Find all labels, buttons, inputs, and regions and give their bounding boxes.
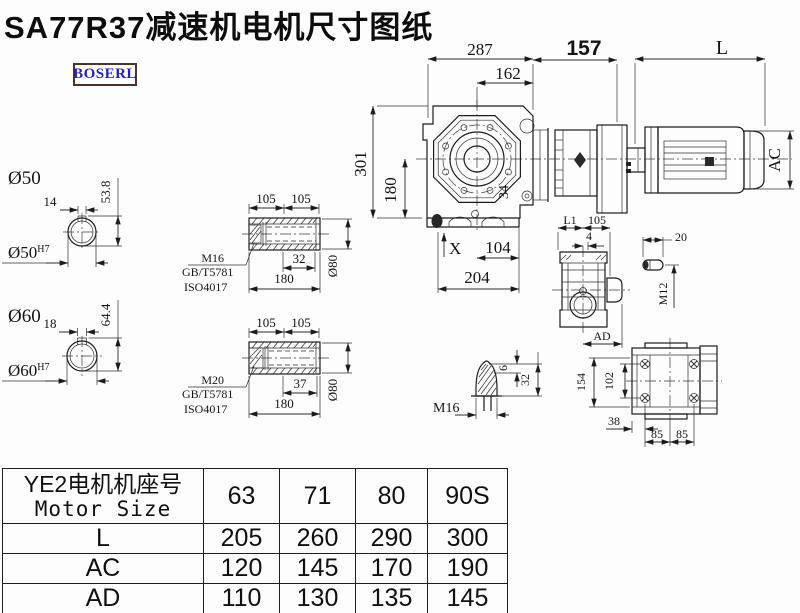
standard-2: ISO4017 xyxy=(184,280,227,294)
cell: 260 xyxy=(280,524,356,554)
size-71: 71 xyxy=(280,469,356,524)
bore-label: Ø50H7 xyxy=(8,243,50,262)
table-row-AC: AC 120 145 170 190 xyxy=(3,554,508,584)
dim-37: 37 xyxy=(294,376,308,391)
row-label: AD xyxy=(3,584,204,613)
dim-105a: 105 xyxy=(256,315,276,330)
dim-6: 6 xyxy=(496,365,510,371)
cell: 130 xyxy=(280,584,356,613)
dim-105b: 105 xyxy=(291,315,311,330)
dim-20: 20 xyxy=(675,230,687,244)
dim-32: 32 xyxy=(293,251,306,266)
bolt-spec: M20 xyxy=(201,373,224,387)
dim-d80: Ø80 xyxy=(325,255,340,277)
size-63: 63 xyxy=(204,469,280,524)
dim-key-width: 14 xyxy=(44,194,58,209)
dim-105b: 105 xyxy=(291,191,311,206)
dim-L: L xyxy=(716,37,728,59)
dim-34: 34 xyxy=(497,185,512,199)
table-row-header: YE2电机机座号 Motor Size 63 71 80 90S xyxy=(3,469,508,524)
dim-180: 180 xyxy=(274,396,294,411)
dim-287: 287 xyxy=(467,40,493,59)
drawing-page: SA77R37减速机电机尺寸图纸 BOSERL xyxy=(0,0,800,613)
dim-204: 204 xyxy=(464,268,490,287)
dim-85b: 85 xyxy=(676,427,688,441)
shaft-section-60: Ø60 18 64.4 Ø60H7 xyxy=(2,300,122,385)
oil-plug xyxy=(432,214,443,228)
dim-4: 4 xyxy=(586,229,592,243)
standard-2: ISO4017 xyxy=(184,402,227,416)
dim-180: 180 xyxy=(274,271,294,286)
header-motor-size: YE2电机机座号 Motor Size xyxy=(3,469,204,524)
cell: 290 xyxy=(356,524,428,554)
plug-detail: 6 32 M16 xyxy=(433,350,542,419)
dim-d80: Ø80 xyxy=(325,379,340,401)
dim-157: 157 xyxy=(566,37,601,60)
bolt-spec: M16 xyxy=(201,251,224,265)
cell: 300 xyxy=(428,524,508,554)
dim-162: 162 xyxy=(495,64,521,83)
dim-AC: AC xyxy=(765,148,784,172)
dim-85a: 85 xyxy=(651,427,663,441)
dim-key-width: 18 xyxy=(44,316,57,331)
size-80: 80 xyxy=(356,469,428,524)
rear-view: 154 102 38 85 85 xyxy=(574,338,722,447)
cell: 110 xyxy=(204,584,280,613)
standard-1: GB/T5781 xyxy=(182,387,233,401)
thread-label: M16 xyxy=(433,401,459,416)
cell: 120 xyxy=(204,554,280,584)
row-label: L xyxy=(3,524,204,554)
cell: 190 xyxy=(428,554,508,584)
dim-105a: 105 xyxy=(256,191,276,206)
nameplate-mark xyxy=(705,157,714,166)
dim-M12: M12 xyxy=(656,283,670,306)
output-side-view: L1 105 4 AD xyxy=(552,213,630,348)
dim-301: 301 xyxy=(351,151,370,177)
cell: 205 xyxy=(204,524,280,554)
dim-AD: AD xyxy=(593,329,611,343)
label-X: X xyxy=(449,239,461,258)
dim-38: 38 xyxy=(608,414,620,428)
key-detail: 20 M12 xyxy=(643,230,687,308)
section-label: Ø60 xyxy=(8,306,41,327)
cell: 145 xyxy=(428,584,508,613)
technical-drawing: 34 xyxy=(0,0,800,462)
main-dimensions: 287 162 157 L AC 301 180 X xyxy=(351,37,794,293)
dim-104: 104 xyxy=(485,238,511,257)
standard-1: GB/T5781 xyxy=(182,265,233,279)
row-label: AC xyxy=(3,554,204,584)
dim-154: 154 xyxy=(574,373,588,391)
hollow-shaft-detail-1: 105 105 32 180 Ø80 M16 GB/T5781 ISO4017 xyxy=(182,191,352,294)
motor-dimension-table: YE2电机机座号 Motor Size 63 71 80 90S L 205 2… xyxy=(2,468,508,613)
hollow-shaft-detail-2: 105 105 37 180 Ø80 M20 GB/T5781 ISO4017 xyxy=(182,315,352,418)
cell: 145 xyxy=(280,554,356,584)
motor-assembly-view xyxy=(533,125,764,213)
dim-102: 102 xyxy=(602,372,616,390)
dim-105: 105 xyxy=(588,213,606,227)
size-90S: 90S xyxy=(428,469,508,524)
header-en: Motor Size xyxy=(3,497,203,521)
section-label: Ø50 xyxy=(8,168,41,189)
shaft-section-50: Ø50 14 53.8 Ø50H7 xyxy=(2,168,122,267)
bore-label: Ø60H7 xyxy=(8,361,50,380)
header-cn: YE2电机机座号 xyxy=(3,471,203,497)
dim-key-depth: 64.4 xyxy=(98,303,113,326)
lifting-eye xyxy=(574,152,586,168)
dim-L1: L1 xyxy=(563,213,576,227)
table-row-L: L 205 260 290 300 xyxy=(3,524,508,554)
dim-key-depth: 53.8 xyxy=(98,181,113,204)
dim-32: 32 xyxy=(518,374,532,386)
table-row-AD: AD 110 130 135 145 xyxy=(3,584,508,613)
cell: 170 xyxy=(356,554,428,584)
cell: 135 xyxy=(356,584,428,613)
dim-180v: 180 xyxy=(381,177,400,203)
